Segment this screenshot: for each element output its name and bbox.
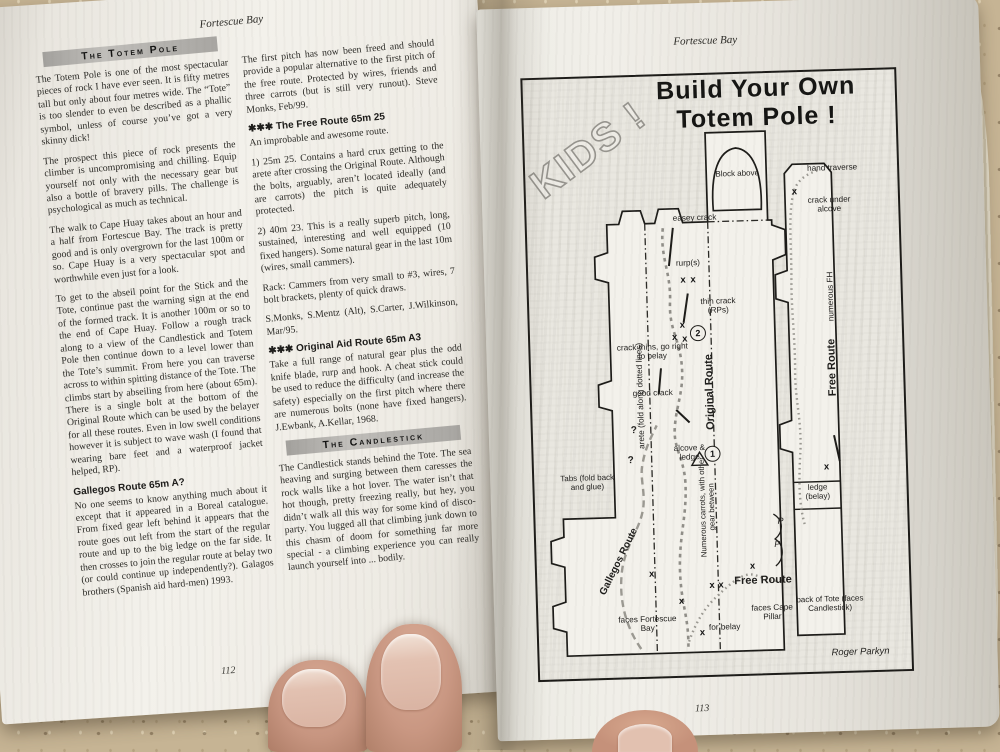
bolt-marker: x	[824, 461, 830, 472]
label-faces-cape-pillar: faces Cape Pillar	[746, 602, 799, 622]
bolt-marker: x	[680, 320, 686, 331]
bolt-marker: x	[750, 561, 756, 572]
label-free-route-vertical: Free Route	[825, 339, 839, 397]
label-easey-crack: easey crack	[672, 213, 716, 223]
bolt-marker: x	[680, 275, 686, 286]
label-ledge-belay: ledge (belay)	[794, 483, 841, 502]
bolt-marker: x	[700, 627, 706, 638]
label-tabs-fold: Tabs (fold back and glue)	[558, 474, 617, 494]
left-page-content: Fortescue Bay The Totem Pole The Totem P…	[32, 0, 482, 607]
paragraph: The Totem Pole is one of the most specta…	[35, 57, 234, 149]
right-running-header: Fortescue Bay	[625, 32, 785, 49]
left-column-1: The Totem Pole The Totem Pole is one of …	[33, 35, 276, 606]
bolt-marker: x	[649, 569, 655, 580]
diagram-credit: Roger Parkyn	[831, 646, 889, 659]
paragraph: The Candlestick stands behind the Tote. …	[279, 446, 481, 575]
label-rurps: rurp(s)	[676, 258, 700, 268]
label-good-crack: good crack	[632, 388, 674, 398]
question-mark: ?	[631, 425, 637, 436]
finger-left	[268, 660, 368, 752]
piton-letter: P	[777, 516, 783, 526]
bolt-marker: x	[718, 580, 724, 591]
fingernail	[618, 724, 672, 752]
paragraph: 2) 40m 23. This is a really superb pitch…	[257, 209, 454, 276]
label-faces-fortescue: faces Fortescue Bay	[616, 614, 679, 634]
paragraph: Take a full range of natural gear plus t…	[269, 343, 468, 435]
fingernail	[282, 669, 346, 727]
cutout-template-drawing	[522, 69, 912, 678]
bolt-marker: x	[709, 580, 715, 591]
label-numerous-fh: numerous FH	[825, 271, 836, 321]
right-page-number: 113	[695, 703, 710, 714]
label-thin-crack: thin crack (RPs)	[689, 296, 748, 316]
paragraph: No one seems to know anything much about…	[74, 483, 275, 600]
label-back-of-tote: back of Tote (faces Candlestick)	[796, 594, 865, 614]
right-page: Fortescue Bay KIDS ! Build Your Own Tote…	[476, 0, 999, 741]
paragraph: The prospect this piece of rock presents…	[43, 139, 241, 218]
fingernail	[381, 634, 441, 710]
label-hand-traverse: hand traverse	[807, 162, 857, 173]
bolt-marker: x	[672, 332, 678, 343]
left-column-2: The first pitch has now been freed and s…	[240, 17, 483, 588]
label-free-route-horizontal: Free Route	[734, 574, 792, 588]
bolt-marker: x	[679, 596, 685, 607]
label-original-route: Original Route	[703, 354, 718, 430]
totem-pole-cutout-diagram: KIDS ! Build Your Own Totem Pole !	[520, 67, 914, 682]
label-for-belay: for belay	[707, 622, 743, 632]
bolt-marker: x	[792, 186, 798, 197]
label-block-above: Block above	[715, 169, 759, 179]
label-crack-under-alcove: crack under alcove	[798, 194, 861, 214]
paragraph: The walk to Cape Huay takes about an hou…	[49, 208, 247, 287]
question-mark: ?	[628, 455, 634, 466]
finger-middle	[366, 624, 462, 752]
bolt-marker: x	[682, 333, 688, 344]
left-page: Fortescue Bay The Totem Pole The Totem P…	[0, 0, 523, 725]
left-page-number: 112	[221, 665, 236, 677]
label-numerous-carrots: Numerous carrots, with other gear betwee…	[697, 451, 718, 563]
bolt-marker: x	[690, 274, 696, 285]
paragraph: To get to the abseil point for the Stick…	[55, 276, 264, 479]
paragraph: 1) 25m 25. Contains a hard crux getting …	[251, 140, 449, 219]
piton-letter: P	[774, 539, 780, 549]
label-crack-thins: crack thins, go right to belay	[616, 341, 689, 362]
